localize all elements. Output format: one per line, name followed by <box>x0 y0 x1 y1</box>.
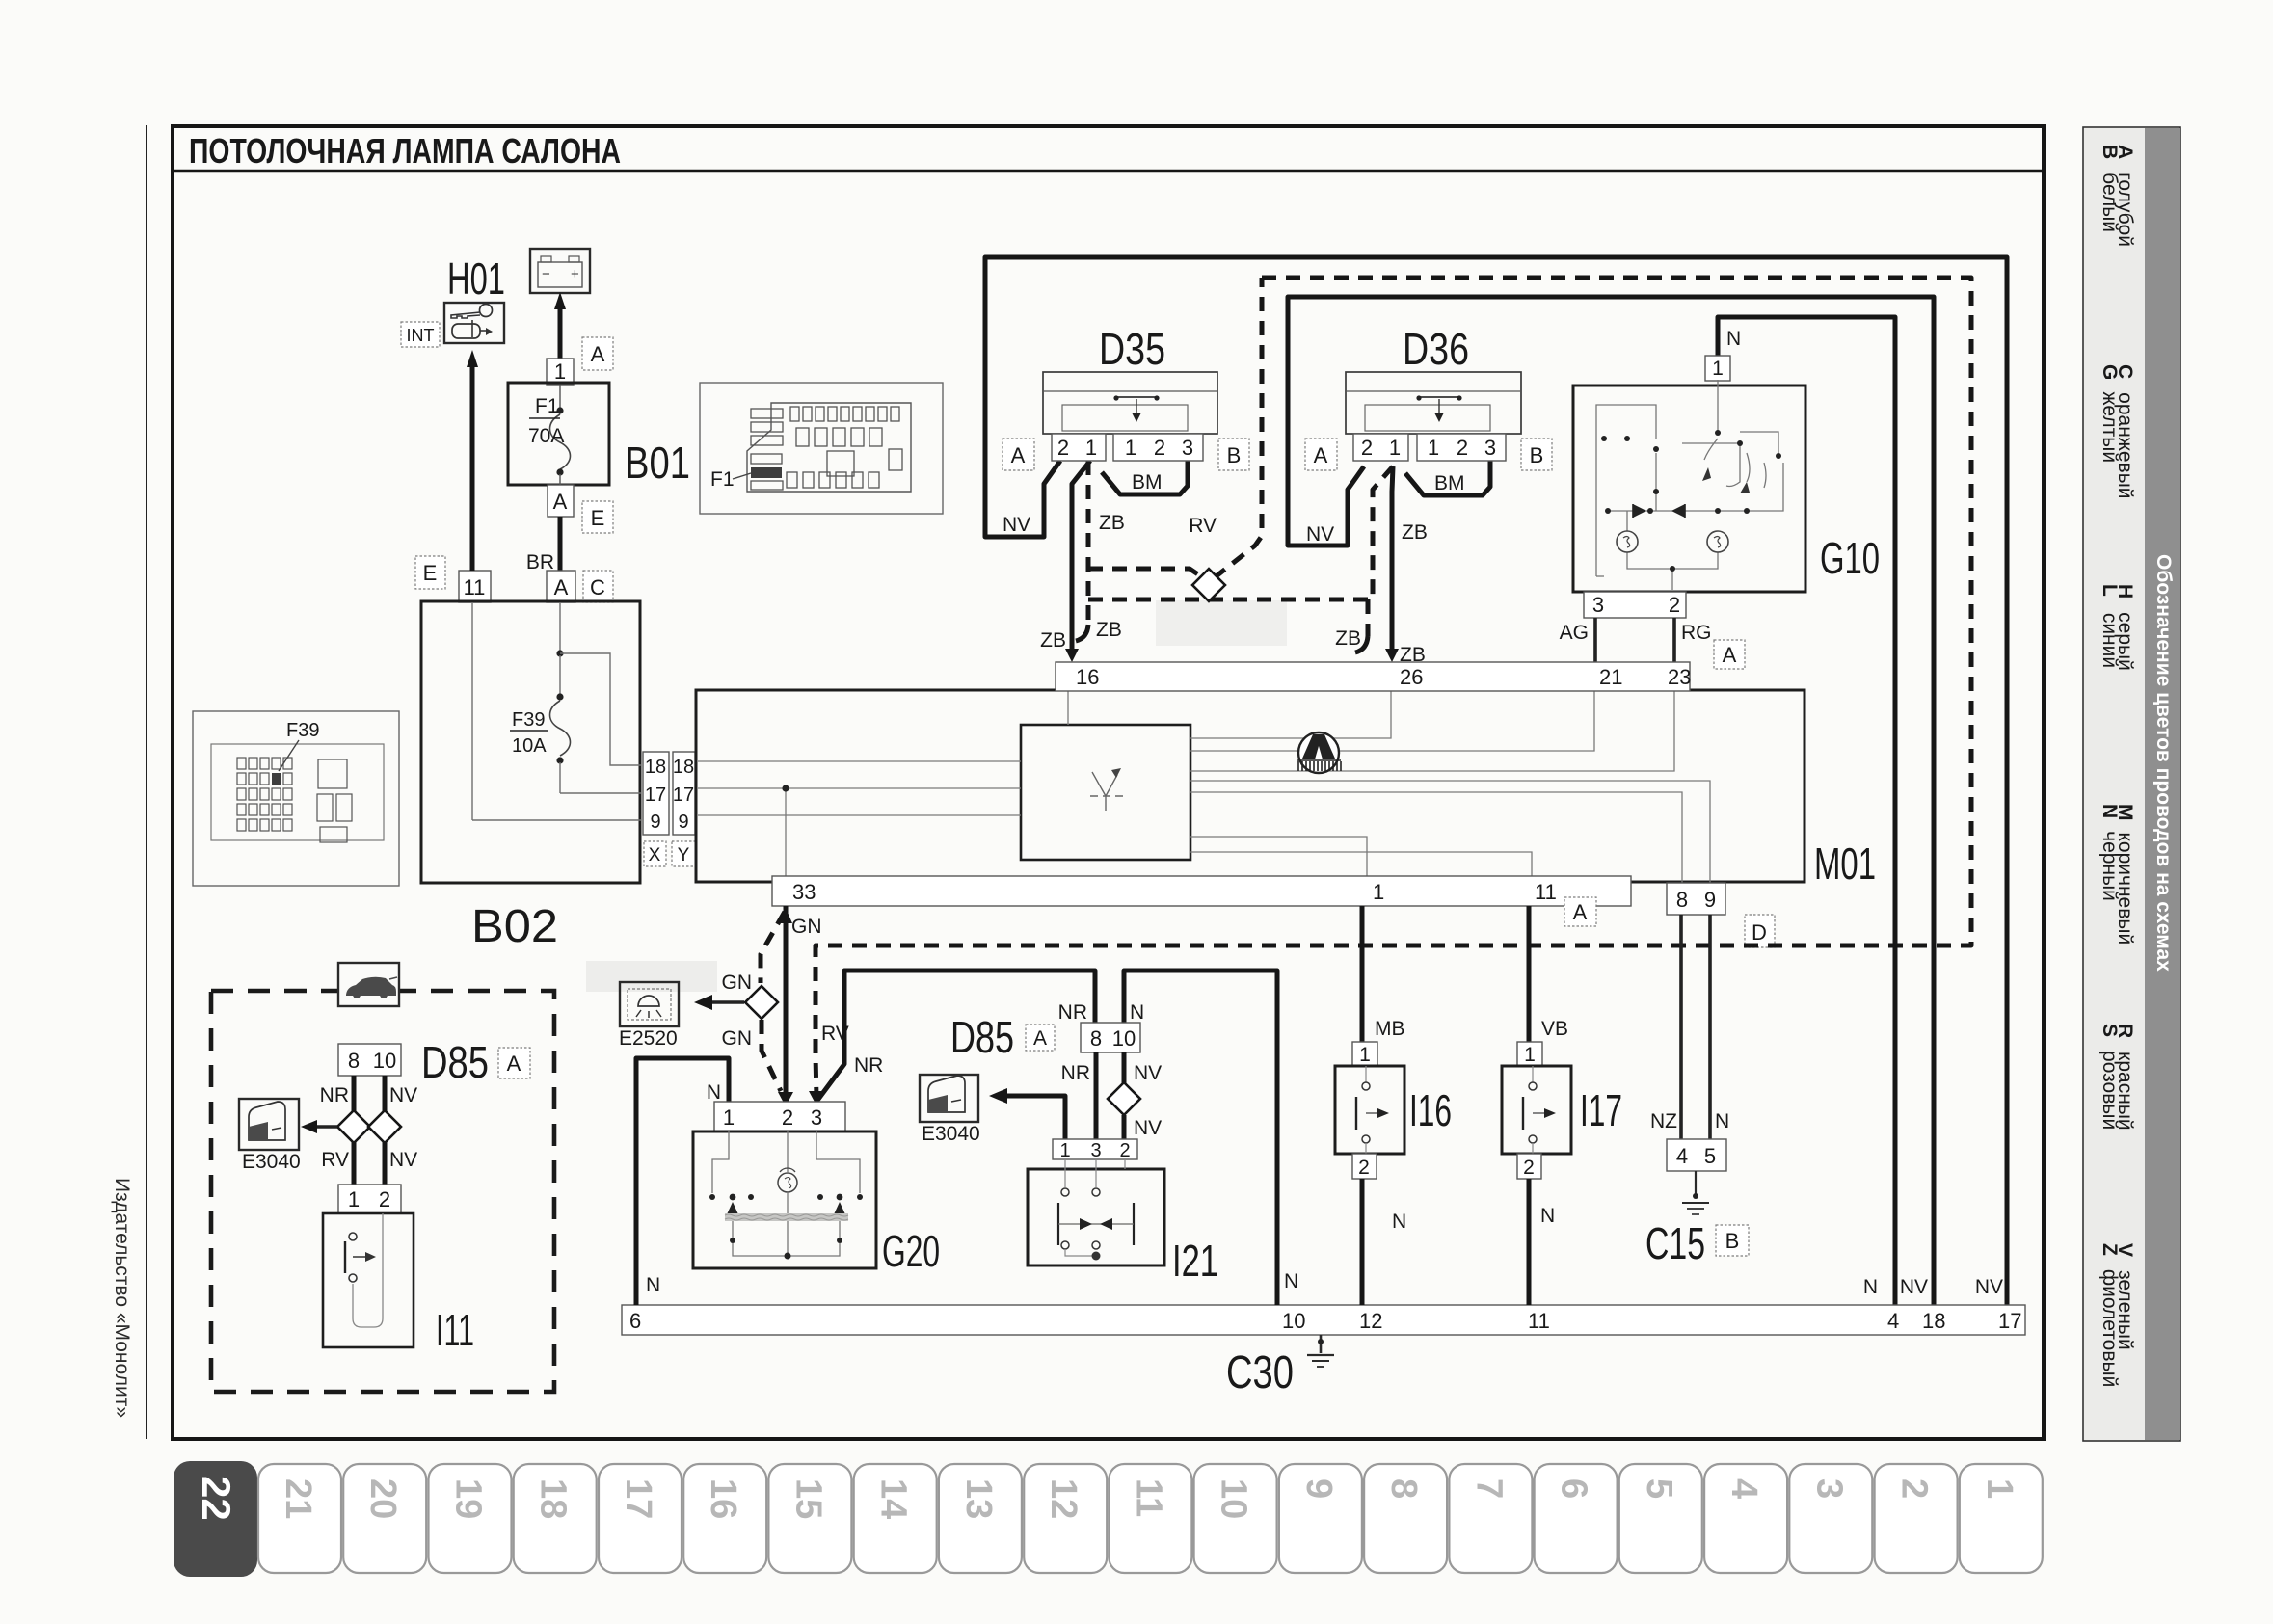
svg-text:5: 5 <box>1639 1478 1679 1499</box>
svg-text:11: 11 <box>464 575 486 599</box>
svg-text:A: A <box>1314 443 1328 467</box>
svg-text:14: 14 <box>873 1478 914 1519</box>
svg-text:6: 6 <box>629 1309 641 1333</box>
svg-text:2: 2 <box>1358 1157 1370 1179</box>
svg-text:11: 11 <box>1128 1478 1168 1517</box>
svg-text:+: + <box>571 266 579 282</box>
svg-text:N: N <box>646 1274 660 1296</box>
svg-text:19: 19 <box>448 1478 489 1519</box>
svg-text:C30: C30 <box>1226 1347 1294 1398</box>
svg-text:N: N <box>1130 1001 1144 1024</box>
svg-text:NV: NV <box>1900 1276 1928 1298</box>
svg-text:F1: F1 <box>710 468 735 491</box>
svg-text:MB: MB <box>1375 1018 1405 1040</box>
svg-text:D85: D85 <box>950 1012 1014 1062</box>
svg-text:N: N <box>1863 1276 1878 1298</box>
svg-text:GN: GN <box>722 1027 753 1050</box>
svg-text:8: 8 <box>348 1049 360 1073</box>
svg-text:13: 13 <box>958 1478 999 1519</box>
svg-text:A: A <box>554 575 569 599</box>
svg-text:1: 1 <box>1373 880 1384 904</box>
svg-text:GN: GN <box>722 972 753 994</box>
svg-text:NR: NR <box>320 1084 349 1106</box>
svg-text:NR: NR <box>1058 1001 1087 1024</box>
svg-text:2: 2 <box>1057 436 1069 460</box>
svg-text:16: 16 <box>1076 665 1099 689</box>
svg-text:12: 12 <box>1043 1478 1083 1519</box>
svg-text:ZB: ZB <box>1040 629 1066 652</box>
svg-text:Y: Y <box>678 845 690 865</box>
svg-text:Обозначение цветов проводов на: Обозначение цветов проводов на схемах <box>2153 554 2175 972</box>
svg-text:23: 23 <box>1668 665 1691 689</box>
svg-text:B: B <box>1227 443 1242 467</box>
svg-text:3: 3 <box>1808 1478 1849 1499</box>
svg-text:4: 4 <box>1887 1309 1899 1333</box>
svg-text:M01: M01 <box>1814 839 1876 889</box>
svg-text:18: 18 <box>673 757 694 778</box>
svg-text:2: 2 <box>1457 436 1468 460</box>
svg-text:10: 10 <box>1214 1478 1254 1519</box>
svg-text:NV: NV <box>389 1149 417 1171</box>
svg-text:2: 2 <box>1361 436 1373 460</box>
svg-text:B02: B02 <box>471 901 558 952</box>
svg-text:H01: H01 <box>447 253 505 304</box>
svg-text:2: 2 <box>1669 593 1680 617</box>
svg-text:D35: D35 <box>1099 324 1165 374</box>
svg-text:11: 11 <box>1535 880 1557 904</box>
svg-text:G20: G20 <box>882 1226 940 1276</box>
svg-text:18: 18 <box>1922 1309 1945 1333</box>
svg-text:B: B <box>1725 1229 1740 1253</box>
svg-text:ZB: ZB <box>1099 512 1125 534</box>
svg-text:1: 1 <box>1125 436 1136 460</box>
svg-text:9: 9 <box>678 812 688 833</box>
svg-text:N: N <box>1392 1211 1406 1233</box>
svg-text:3: 3 <box>1090 1140 1101 1161</box>
svg-text:70A: 70A <box>528 425 564 447</box>
svg-text:X: X <box>649 845 661 865</box>
svg-text:−: − <box>542 266 550 282</box>
svg-text:ZB: ZB <box>1335 627 1361 650</box>
svg-text:NV: NV <box>1306 523 1334 546</box>
svg-text:D85: D85 <box>421 1037 489 1087</box>
svg-text:F39: F39 <box>512 709 545 731</box>
svg-text:NV: NV <box>1134 1062 1162 1084</box>
svg-text:15: 15 <box>788 1478 828 1519</box>
svg-text:A: A <box>553 490 568 514</box>
svg-text:C15: C15 <box>1645 1218 1705 1268</box>
svg-text:Nчерный: Nчерный <box>2099 804 2121 901</box>
svg-text:A: A <box>1573 900 1588 924</box>
svg-text:17: 17 <box>645 785 666 806</box>
svg-text:C: C <box>590 575 605 599</box>
svg-text:Вбелый: Вбелый <box>2099 145 2121 232</box>
svg-text:NR: NR <box>854 1054 883 1077</box>
svg-text:BM: BM <box>1132 471 1163 493</box>
svg-text:RV: RV <box>1189 515 1217 537</box>
svg-text:1: 1 <box>348 1187 360 1211</box>
svg-text:1: 1 <box>554 359 566 384</box>
svg-text:ПОТОЛОЧНАЯ ЛАМПА САЛОНА: ПОТОЛОЧНАЯ ЛАМПА САЛОНА <box>189 131 621 171</box>
svg-text:1: 1 <box>1359 1044 1371 1066</box>
svg-text:10A: 10A <box>512 735 547 757</box>
svg-text:8: 8 <box>1676 888 1688 912</box>
svg-text:1: 1 <box>1085 436 1097 460</box>
svg-text:AG: AG <box>1560 622 1589 644</box>
svg-text:26: 26 <box>1400 665 1423 689</box>
svg-text:ZB: ZB <box>1096 619 1122 641</box>
svg-text:1: 1 <box>1059 1140 1070 1161</box>
svg-text:VB: VB <box>1541 1018 1568 1040</box>
svg-text:N: N <box>1715 1110 1729 1132</box>
svg-text:N: N <box>1726 328 1741 350</box>
svg-text:21: 21 <box>1599 665 1622 689</box>
svg-text:Gжелтый: Gжелтый <box>2099 364 2121 463</box>
svg-text:9: 9 <box>650 812 660 833</box>
svg-text:D: D <box>1752 920 1767 945</box>
svg-text:I17: I17 <box>1580 1085 1622 1135</box>
svg-text:10: 10 <box>1282 1309 1305 1333</box>
svg-text:ZB: ZB <box>1402 521 1428 544</box>
svg-text:G10: G10 <box>1820 533 1880 583</box>
svg-text:NV: NV <box>389 1084 417 1106</box>
svg-text:E: E <box>423 561 438 585</box>
svg-text:A: A <box>507 1052 521 1076</box>
svg-text:1: 1 <box>1712 358 1724 380</box>
svg-text:3: 3 <box>811 1105 822 1130</box>
svg-text:E3040: E3040 <box>242 1151 301 1173</box>
svg-text:21: 21 <box>278 1478 318 1519</box>
svg-text:E3040: E3040 <box>922 1123 980 1145</box>
svg-text:3: 3 <box>1592 593 1604 617</box>
svg-text:NV: NV <box>1975 1276 2003 1298</box>
svg-text:1: 1 <box>1389 436 1401 460</box>
svg-text:E: E <box>591 506 605 530</box>
svg-text:16: 16 <box>703 1478 743 1519</box>
svg-text:3: 3 <box>1484 436 1496 460</box>
svg-text:2: 2 <box>1894 1478 1935 1499</box>
svg-text:GN: GN <box>791 916 822 938</box>
svg-text:1: 1 <box>723 1105 735 1130</box>
svg-text:RV: RV <box>321 1149 349 1171</box>
svg-text:12: 12 <box>1359 1309 1382 1333</box>
svg-text:18: 18 <box>533 1478 574 1519</box>
svg-text:22: 22 <box>194 1476 239 1521</box>
svg-text:BM: BM <box>1434 472 1465 494</box>
svg-text:1: 1 <box>1524 1044 1536 1066</box>
svg-text:10: 10 <box>1112 1026 1136 1051</box>
svg-text:17: 17 <box>1998 1309 2021 1333</box>
svg-text:8: 8 <box>1383 1478 1424 1499</box>
svg-text:A: A <box>1011 443 1026 467</box>
svg-text:2: 2 <box>379 1187 390 1211</box>
svg-text:I11: I11 <box>436 1305 474 1355</box>
svg-text:8: 8 <box>1090 1026 1102 1051</box>
svg-text:2: 2 <box>1523 1157 1535 1179</box>
svg-text:3: 3 <box>1182 436 1193 460</box>
svg-text:2: 2 <box>1154 436 1165 460</box>
svg-text:4: 4 <box>1676 1144 1688 1168</box>
svg-text:NV: NV <box>1003 514 1030 536</box>
svg-text:33: 33 <box>792 880 816 904</box>
svg-text:20: 20 <box>362 1478 403 1519</box>
svg-text:NZ: NZ <box>1650 1110 1677 1132</box>
svg-text:9: 9 <box>1298 1478 1339 1499</box>
svg-text:17: 17 <box>618 1478 658 1519</box>
svg-text:RG: RG <box>1681 622 1712 644</box>
svg-text:1: 1 <box>1428 436 1439 460</box>
svg-text:E2520: E2520 <box>619 1027 678 1050</box>
svg-text:A: A <box>1033 1027 1047 1050</box>
svg-text:I16: I16 <box>1409 1085 1452 1135</box>
svg-text:A: A <box>1723 643 1737 667</box>
svg-text:5: 5 <box>1704 1144 1716 1168</box>
svg-text:NV: NV <box>1134 1117 1162 1139</box>
svg-text:D36: D36 <box>1403 324 1469 374</box>
svg-text:NR: NR <box>1061 1062 1090 1084</box>
svg-text:10: 10 <box>373 1049 396 1073</box>
svg-text:A: A <box>591 342 605 366</box>
svg-text:2: 2 <box>782 1105 793 1130</box>
svg-text:4: 4 <box>1724 1478 1764 1499</box>
svg-text:F1: F1 <box>535 395 559 417</box>
svg-text:F39: F39 <box>286 720 319 741</box>
svg-text:B: B <box>1530 443 1544 467</box>
svg-text:6: 6 <box>1554 1478 1594 1499</box>
svg-text:I21: I21 <box>1172 1236 1218 1286</box>
svg-text:18: 18 <box>645 757 666 778</box>
svg-text:11: 11 <box>1528 1309 1550 1333</box>
svg-text:INT: INT <box>407 326 435 345</box>
svg-text:1: 1 <box>1979 1478 2019 1499</box>
svg-text:N: N <box>1540 1205 1555 1227</box>
svg-text:N: N <box>1284 1270 1298 1292</box>
svg-text:Издательство «Монолит»: Издательство «Монолит» <box>111 1178 133 1418</box>
svg-text:7: 7 <box>1468 1478 1509 1499</box>
svg-text:2: 2 <box>1119 1140 1130 1161</box>
svg-text:17: 17 <box>673 785 694 806</box>
svg-text:B01: B01 <box>625 438 690 488</box>
svg-text:N: N <box>707 1081 721 1104</box>
svg-text:9: 9 <box>1704 888 1716 912</box>
